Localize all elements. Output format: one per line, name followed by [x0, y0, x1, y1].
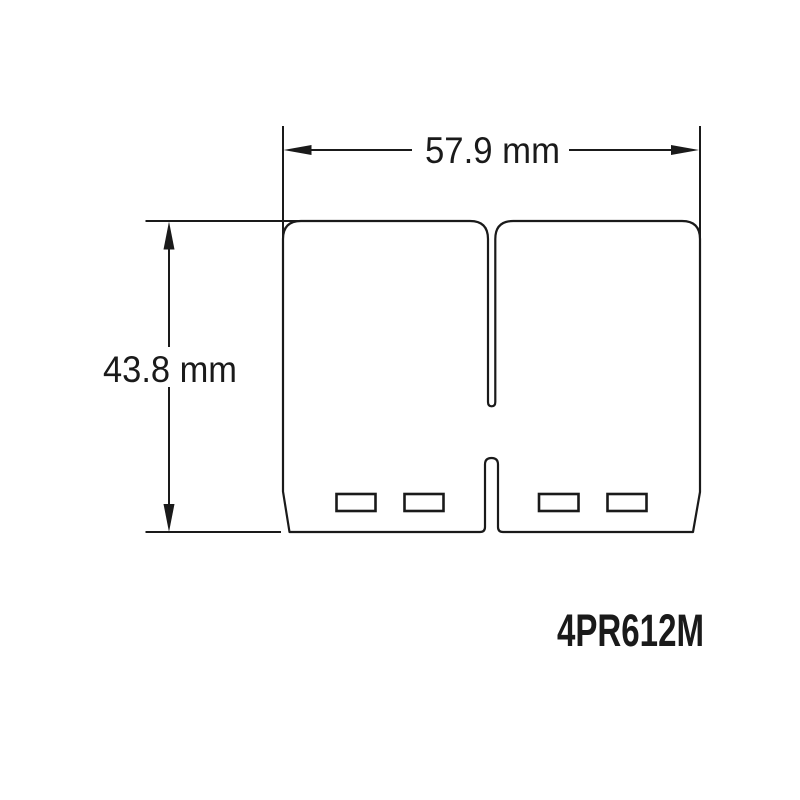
- svg-text:4PR612M: 4PR612M: [557, 605, 704, 656]
- svg-text:57.9 mm: 57.9 mm: [425, 130, 560, 171]
- svg-text:43.8 mm: 43.8 mm: [103, 349, 237, 390]
